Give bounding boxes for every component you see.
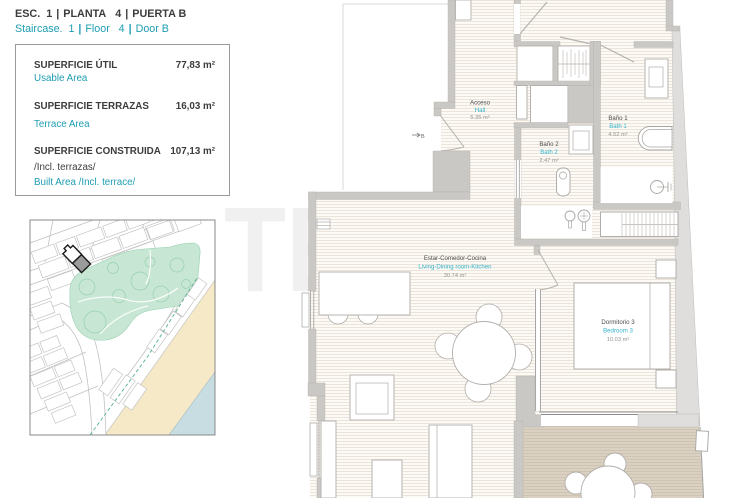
svg-text:4.52 m²: 4.52 m² xyxy=(608,132,627,138)
svg-text:Bedroom 3: Bedroom 3 xyxy=(603,328,633,335)
svg-text:Living-Dining room-Kitchen: Living-Dining room-Kitchen xyxy=(418,264,491,271)
svg-text:Baño 1: Baño 1 xyxy=(608,115,628,122)
svg-text:Acceso: Acceso xyxy=(470,100,491,107)
svg-text:Estar-Comedor-Cocina: Estar-Comedor-Cocina xyxy=(424,255,487,262)
svg-text:Hall: Hall xyxy=(475,107,486,114)
svg-text:Baño 2: Baño 2 xyxy=(539,141,559,148)
svg-text:B: B xyxy=(421,134,425,140)
svg-text:10.03 m²: 10.03 m² xyxy=(607,337,630,343)
svg-text:Bath 1: Bath 1 xyxy=(609,123,627,130)
svg-text:5.35 m²: 5.35 m² xyxy=(470,115,489,121)
svg-text:30.74 m²: 30.74 m² xyxy=(444,273,467,279)
svg-text:2.47 m²: 2.47 m² xyxy=(539,158,558,164)
svg-text:Dormitorio 3: Dormitorio 3 xyxy=(601,319,635,326)
svg-text:Bath 2: Bath 2 xyxy=(540,149,558,156)
